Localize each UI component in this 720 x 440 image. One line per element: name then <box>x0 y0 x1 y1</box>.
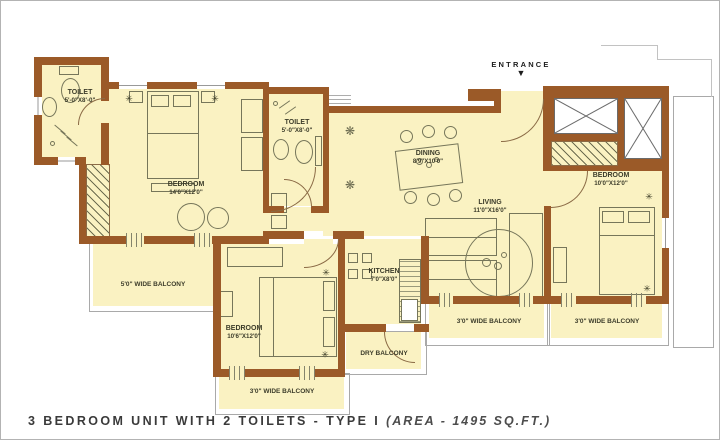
window-icon <box>119 82 147 89</box>
adjacent-unit-outline <box>601 45 658 46</box>
wall <box>323 106 499 113</box>
wall <box>213 239 221 377</box>
chair-icon <box>449 189 462 202</box>
door-track-icon <box>299 366 315 380</box>
adjacent-unit-outline <box>673 96 714 348</box>
pillow-icon <box>323 281 335 311</box>
living-label: LIVING 11'0"X16'0" <box>473 198 506 215</box>
wall <box>263 87 329 94</box>
sofa-icon <box>241 137 263 171</box>
chair-icon <box>400 130 413 143</box>
stove-icon <box>348 253 358 263</box>
room-name: BEDROOM <box>168 180 205 189</box>
lift-shaft-icon <box>624 98 662 159</box>
pillow-icon <box>151 95 169 107</box>
room-name: TOILET <box>282 118 313 127</box>
light-icon: ✳ <box>211 95 219 104</box>
pillow-icon <box>602 211 624 223</box>
room-name: DINING <box>413 149 443 158</box>
room-dims: 14'0"X12'0" <box>168 189 205 197</box>
sofa-icon <box>241 99 263 133</box>
wall <box>311 206 323 213</box>
balcony-left-label: 5'0" WIDE BALCONY <box>121 281 186 288</box>
plan-title-main: 3 BEDROOM UNIT WITH 2 TOILETS - TYPE I <box>28 414 380 428</box>
shower-icon <box>50 141 55 146</box>
door-track-icon <box>561 293 576 307</box>
window-icon <box>197 82 225 89</box>
room-name: TOILET <box>65 88 96 97</box>
balcony-bottom-label: 3'0" WIDE BALCONY <box>250 388 315 395</box>
chair-icon <box>422 125 435 138</box>
cabinet-icon <box>271 215 287 229</box>
plant-icon: ❋ <box>345 179 355 191</box>
washbasin-icon <box>273 139 289 160</box>
pillow-icon <box>628 211 650 223</box>
adjacent-unit-outline <box>657 45 658 60</box>
chair-icon <box>207 207 229 229</box>
table-icon <box>177 203 205 231</box>
dresser-icon <box>553 247 567 283</box>
bowl-icon <box>494 262 502 270</box>
cistern-icon <box>59 66 79 75</box>
wall <box>338 231 345 331</box>
light-icon: ✳ <box>321 351 329 360</box>
entrance-arrow-icon: ▼ <box>469 69 573 78</box>
wall <box>414 324 429 332</box>
plant-icon: ❋ <box>345 125 355 137</box>
dining-label: DINING 8'9"X10'0" <box>413 149 443 166</box>
room-dims: 7'0"X8'0" <box>368 276 399 284</box>
toilet2-label: TOILET 5'-0"X8'-0" <box>282 118 313 135</box>
light-icon: ✳ <box>322 269 330 278</box>
dry-balcony-label: DRY BALCONY <box>360 350 407 357</box>
wall <box>34 57 42 97</box>
wall <box>79 161 86 244</box>
door-track-icon <box>439 293 453 307</box>
wall <box>263 231 304 239</box>
door-track-icon <box>126 233 144 247</box>
chair-icon <box>404 191 417 204</box>
room-dims: 8'9"X10'0" <box>413 158 443 166</box>
sofa-icon <box>227 247 283 267</box>
wall <box>101 123 109 165</box>
balcony-living-label: 3'0" WIDE BALCONY <box>457 318 522 325</box>
adjacent-unit-outline <box>657 59 712 60</box>
balcony-left-floor <box>93 244 213 306</box>
window-icon <box>34 97 42 115</box>
plan-title-area: (AREA - 1495 SQ.FT.) <box>386 414 551 428</box>
door-track-icon <box>519 293 533 307</box>
bedroom2-label: BEDROOM 10'6"X12'0" <box>226 324 263 341</box>
light-icon: ✳ <box>643 285 651 294</box>
chair-icon <box>427 193 440 206</box>
room-dims: 10'0"X12'0" <box>593 180 630 188</box>
door-track-icon <box>631 293 646 307</box>
wall <box>494 96 501 113</box>
light-icon: ✳ <box>645 193 653 202</box>
wall <box>421 236 429 304</box>
toilet1-label: TOILET 5'-0"X8'-0" <box>65 88 96 105</box>
toilet-icon <box>295 140 313 164</box>
pillow-icon <box>323 317 335 347</box>
wall <box>101 57 109 101</box>
washbasin-icon <box>42 97 57 117</box>
kitchen-label: KITCHEN 7'0"X8'0" <box>368 267 399 284</box>
wall <box>34 57 109 65</box>
door-track-icon <box>229 366 245 380</box>
window-icon <box>329 95 351 106</box>
room-name: LIVING <box>473 198 506 207</box>
bedroom3-label: BEDROOM 10'0"X12'0" <box>593 171 630 188</box>
bowl-icon <box>482 258 491 267</box>
wall <box>263 87 269 213</box>
stove-icon <box>348 269 358 279</box>
wall <box>338 331 345 377</box>
wardrobe-icon <box>86 164 110 238</box>
wall <box>34 157 58 165</box>
blanket-line <box>273 277 274 357</box>
pillow-icon <box>173 95 191 107</box>
entrance-label: ENTRANCE ▼ <box>469 60 573 78</box>
room-dims: 5'-0"X8'-0" <box>65 97 96 105</box>
stove-icon <box>362 253 372 263</box>
wall <box>338 324 386 332</box>
room-name: KITCHEN <box>368 267 399 276</box>
door-gap <box>544 171 551 206</box>
wardrobe-icon <box>551 141 618 166</box>
sink-icon <box>401 299 418 321</box>
window-icon <box>662 218 669 248</box>
door-track-icon <box>194 233 212 247</box>
blanket-line <box>147 133 199 134</box>
bedroom1-label: BEDROOM 14'0"X12'0" <box>168 180 205 197</box>
light-icon: ✳ <box>125 95 133 104</box>
plan-title: 3 BEDROOM UNIT WITH 2 TOILETS - TYPE I(A… <box>28 414 668 428</box>
shower-icon <box>273 101 278 106</box>
wall <box>79 236 269 244</box>
bowl-icon <box>501 252 507 258</box>
room-dims: 10'6"X12'0" <box>226 333 263 341</box>
adjacent-unit-outline <box>711 59 712 97</box>
blanket-line <box>599 235 655 236</box>
chair-icon <box>444 126 457 139</box>
room-dims: 11'0"X16'0" <box>473 207 506 215</box>
floor-plan: ❋ ❋ <box>0 0 720 440</box>
room-dims: 5'-0"X8'-0" <box>282 127 313 135</box>
lift-shaft-icon <box>554 98 618 134</box>
room-name: BEDROOM <box>593 171 630 180</box>
couch-icon <box>509 213 543 299</box>
wall <box>662 171 669 218</box>
cistern-icon <box>315 136 322 166</box>
window-icon <box>58 157 75 165</box>
room-name: BEDROOM <box>226 324 263 333</box>
cabinet-icon <box>219 291 233 317</box>
wall <box>544 206 551 304</box>
balcony-bedroom3-label: 3'0" WIDE BALCONY <box>575 318 640 325</box>
